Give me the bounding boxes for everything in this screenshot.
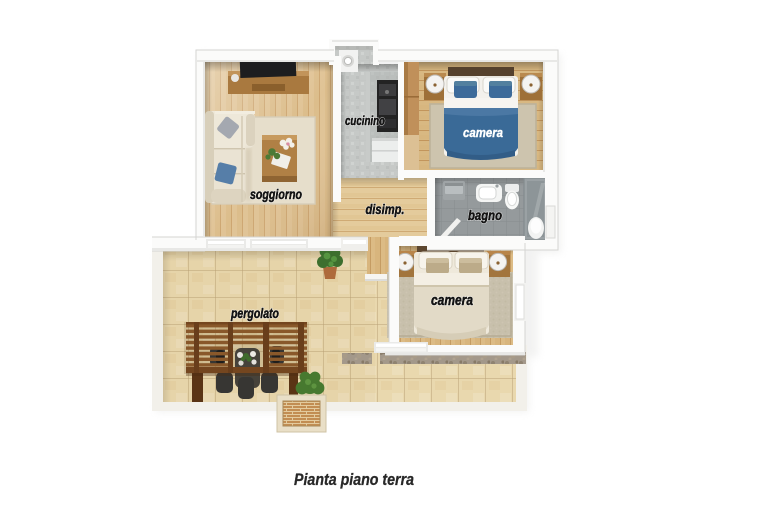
svg-text:soggiorno: soggiorno: [250, 186, 302, 202]
svg-text:camera: camera: [463, 125, 503, 140]
svg-text:pergolato: pergolato: [230, 306, 279, 321]
svg-text:cucinino: cucinino: [345, 113, 385, 128]
svg-text:Pianta piano terra: Pianta piano terra: [294, 471, 414, 489]
svg-text:bagno: bagno: [468, 207, 502, 223]
svg-text:disimp.: disimp.: [366, 201, 405, 217]
svg-text:camera: camera: [431, 293, 473, 309]
